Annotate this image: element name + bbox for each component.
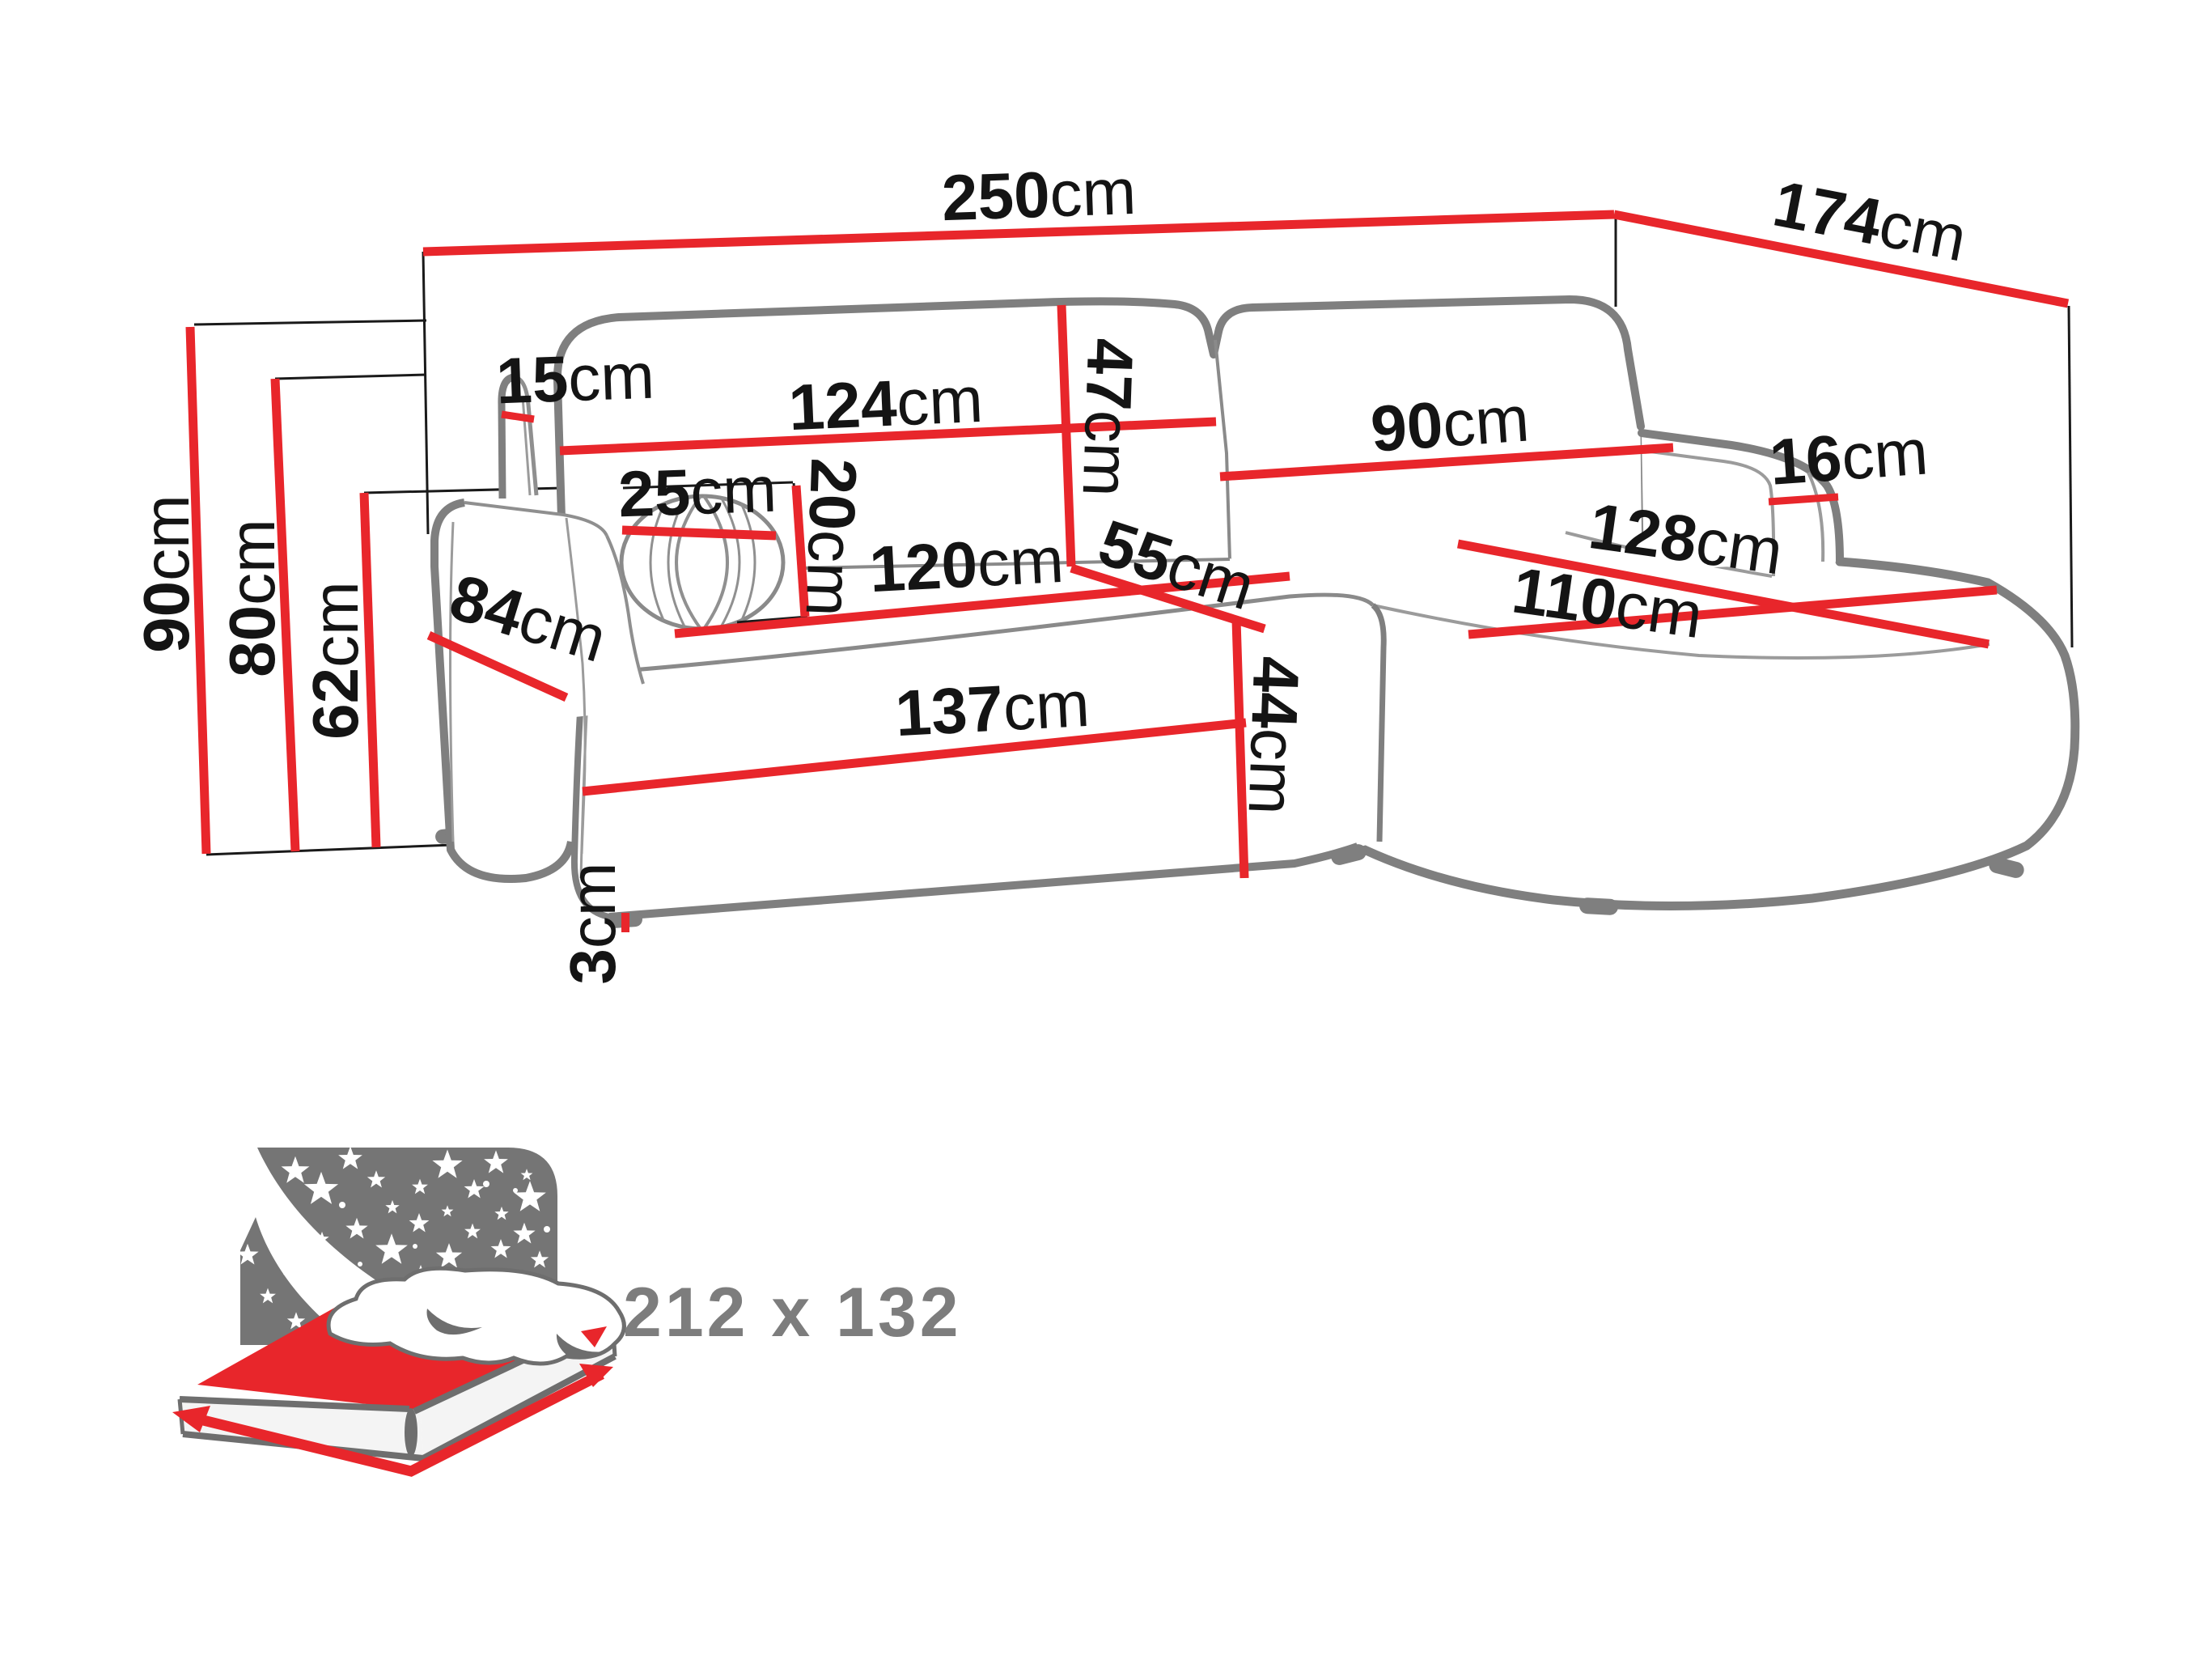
svg-text:137cm: 137cm: [893, 668, 1091, 749]
svg-text:90cm: 90cm: [130, 494, 202, 653]
svg-text:90cm: 90cm: [1368, 382, 1531, 465]
svg-text:47cm: 47cm: [1070, 337, 1147, 499]
svg-text:124cm: 124cm: [787, 363, 985, 443]
svg-text:20cm: 20cm: [793, 457, 871, 618]
svg-text:15cm: 15cm: [495, 340, 656, 418]
svg-text:212 x 132: 212 x 132: [623, 1274, 962, 1351]
svg-text:44cm: 44cm: [1235, 656, 1313, 817]
svg-text:25cm: 25cm: [617, 453, 778, 531]
svg-text:16cm: 16cm: [1767, 415, 1930, 498]
svg-text:80cm: 80cm: [216, 519, 288, 677]
svg-text:250cm: 250cm: [940, 155, 1137, 234]
svg-text:120cm: 120cm: [867, 524, 1065, 605]
svg-text:62cm: 62cm: [299, 581, 371, 740]
svg-text:3cm: 3cm: [557, 862, 629, 984]
